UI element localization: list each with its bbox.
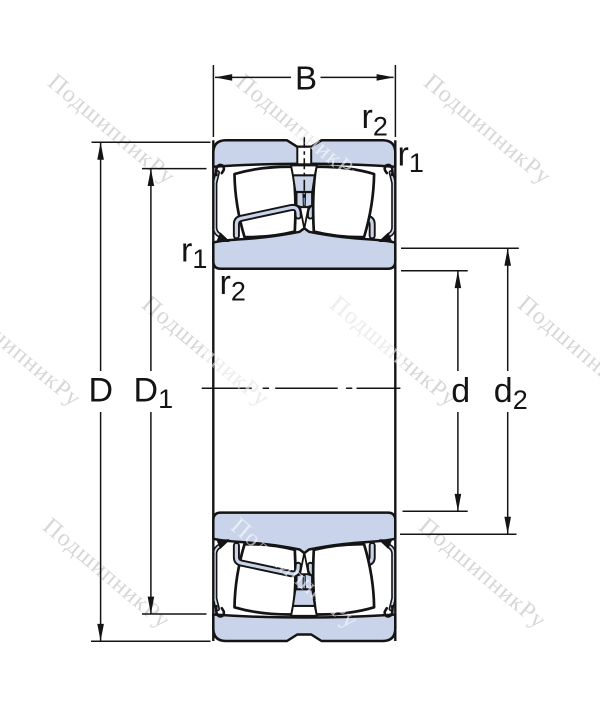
svg-text:d: d bbox=[451, 372, 470, 410]
svg-text:D: D bbox=[89, 372, 114, 410]
svg-text:B: B bbox=[295, 60, 317, 97]
